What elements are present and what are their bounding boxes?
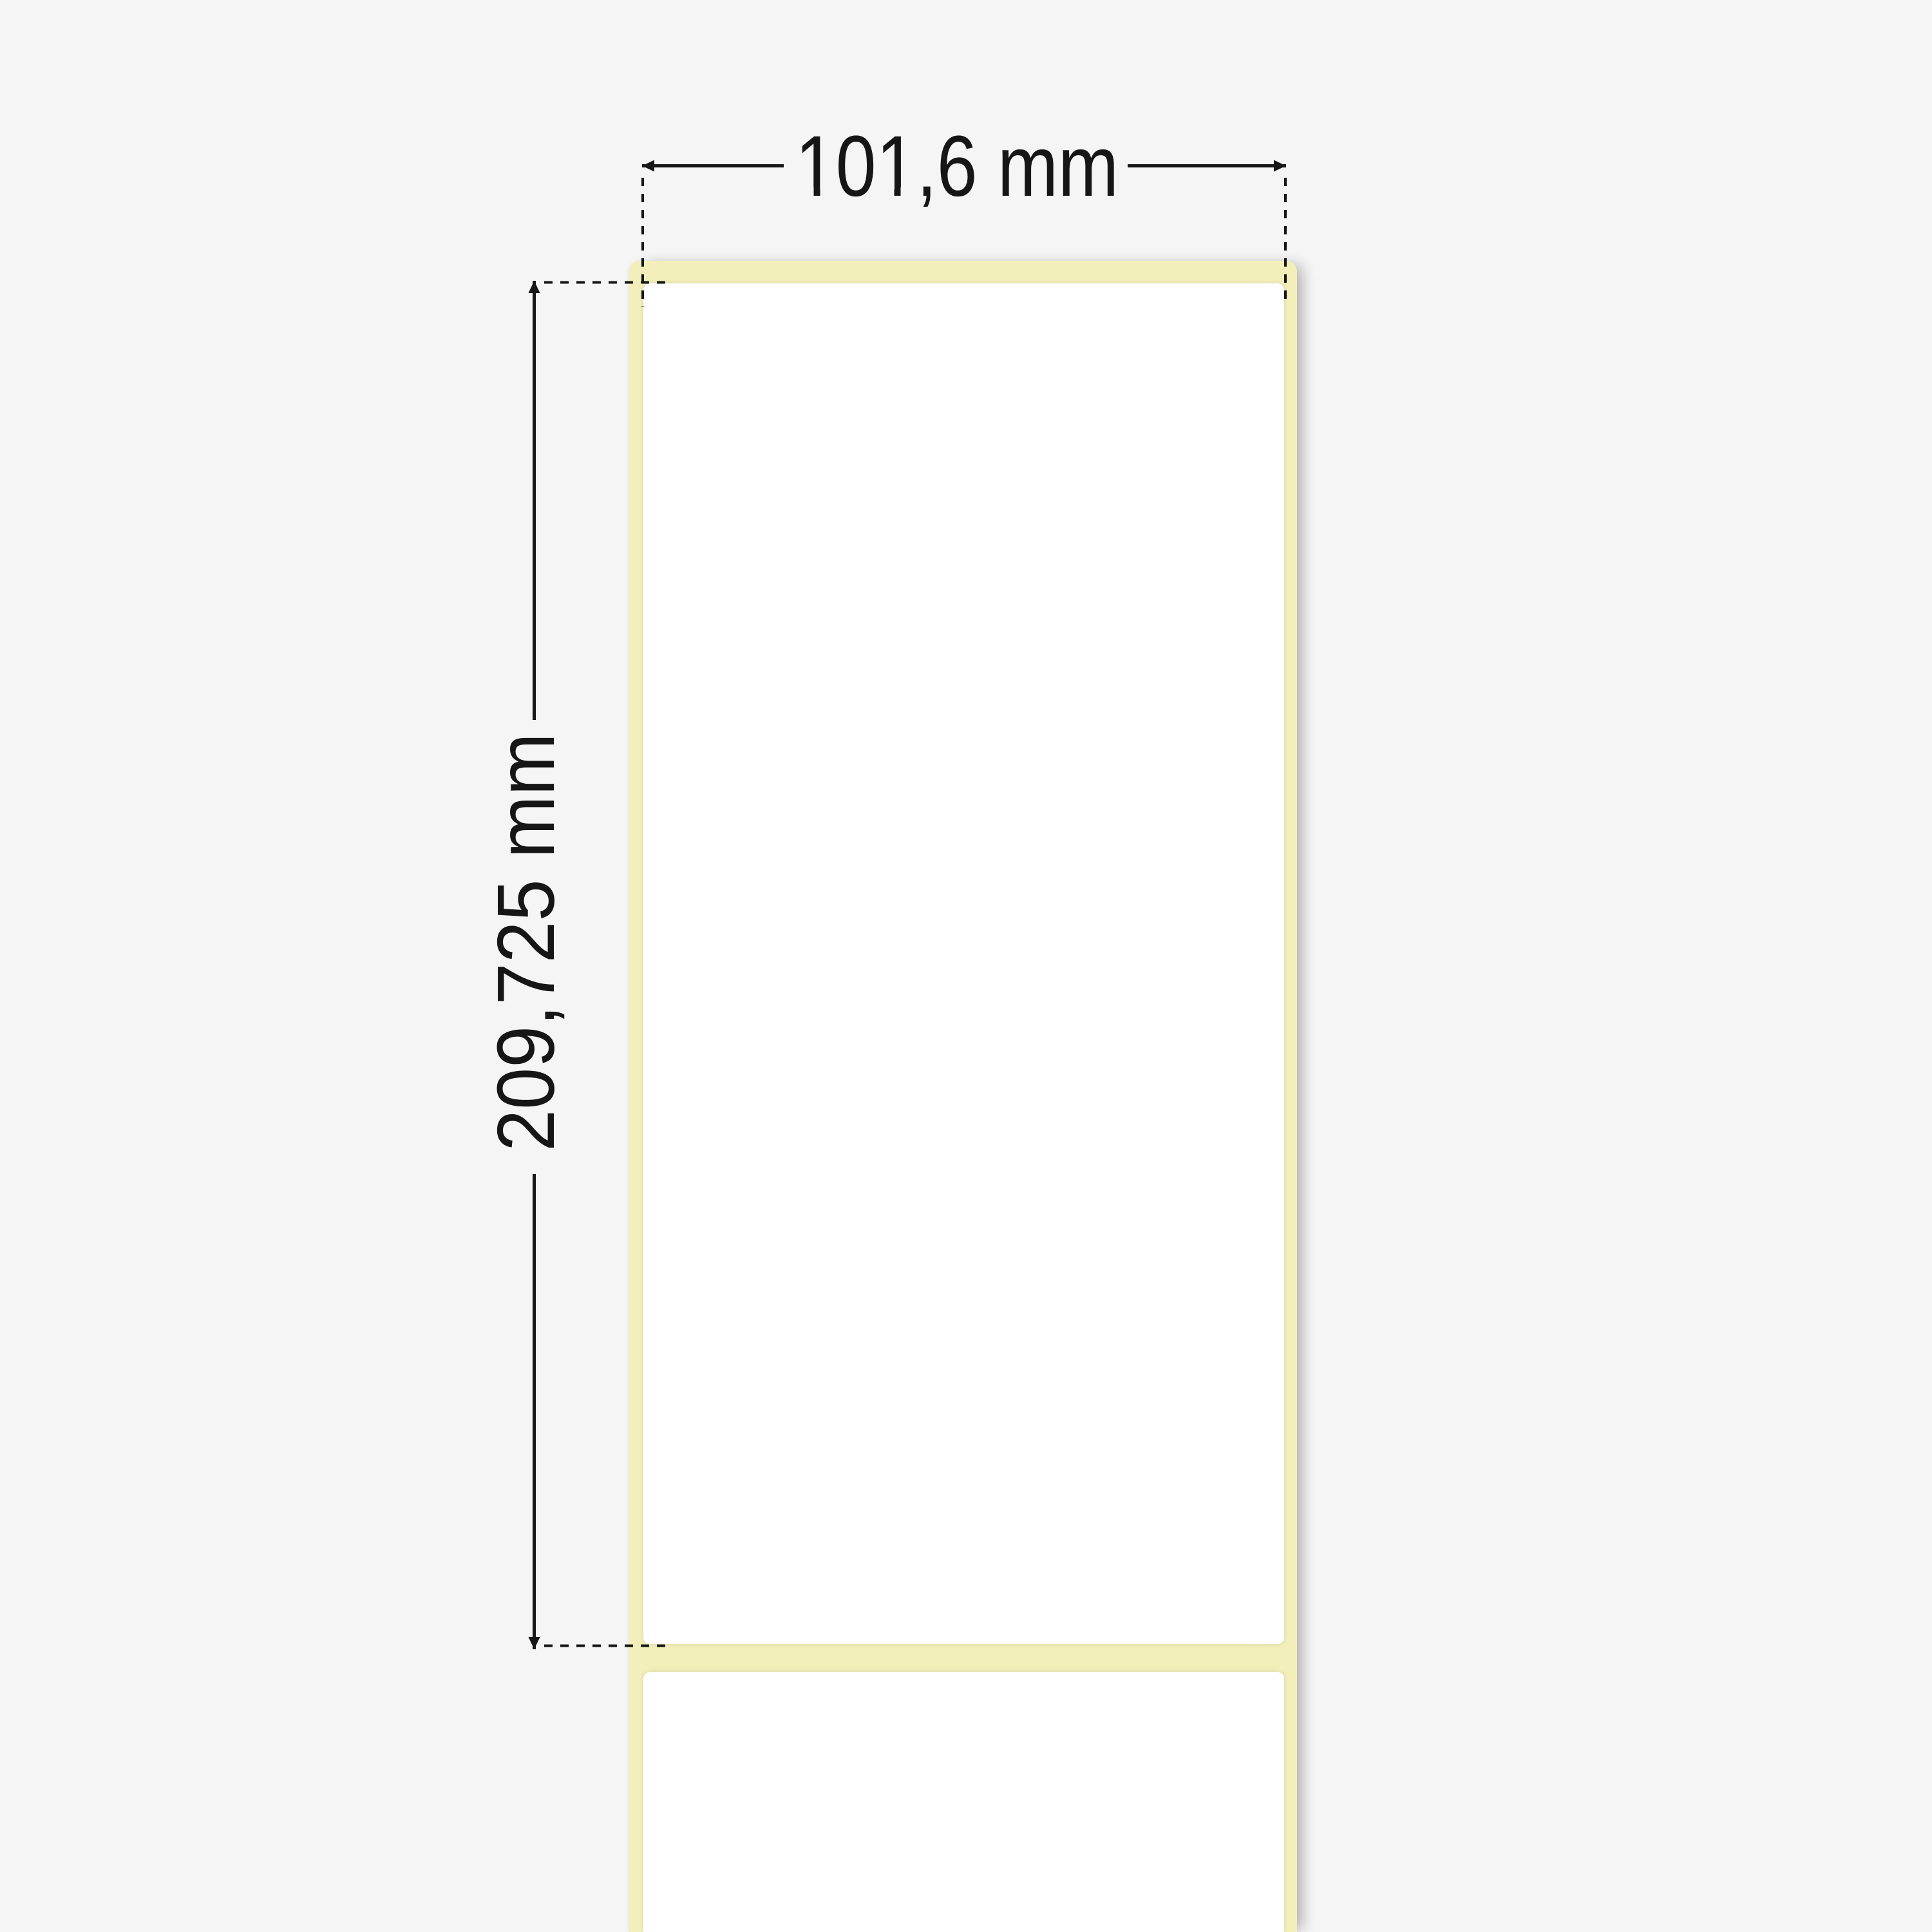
svg-text:101,6 mm: 101,6 mm: [795, 118, 1119, 214]
svg-text:209,725 mm: 209,725 mm: [480, 733, 571, 1151]
